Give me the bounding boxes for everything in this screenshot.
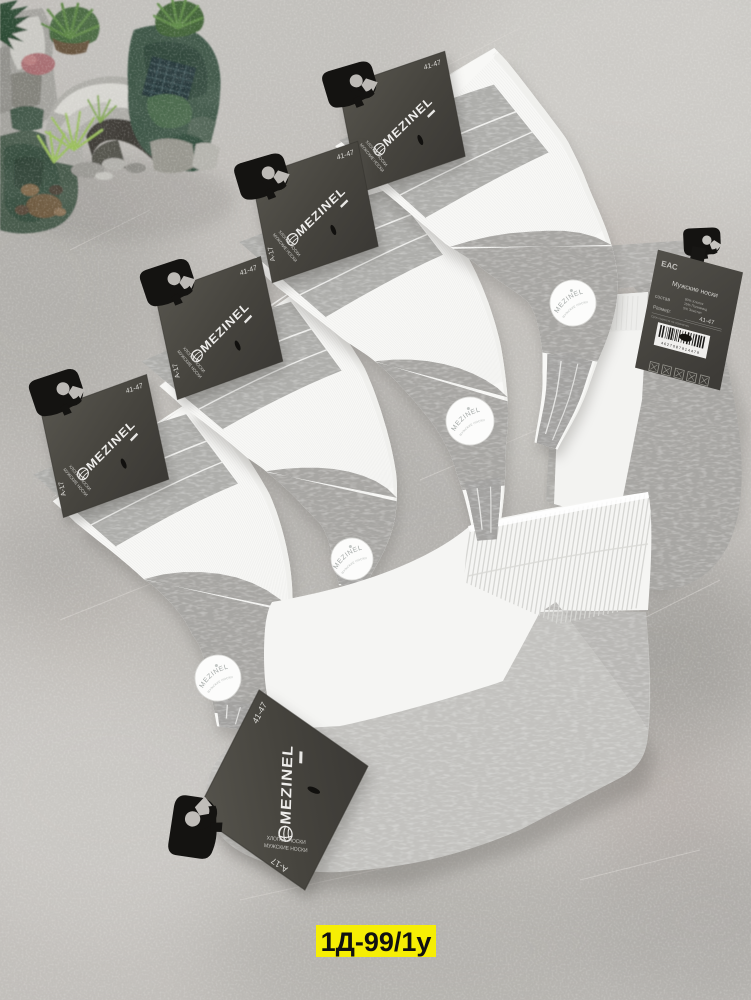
svg-text:1Д-99/1у: 1Д-99/1у <box>321 927 432 957</box>
svg-text:MEZINEL: MEZINEL <box>278 744 296 826</box>
